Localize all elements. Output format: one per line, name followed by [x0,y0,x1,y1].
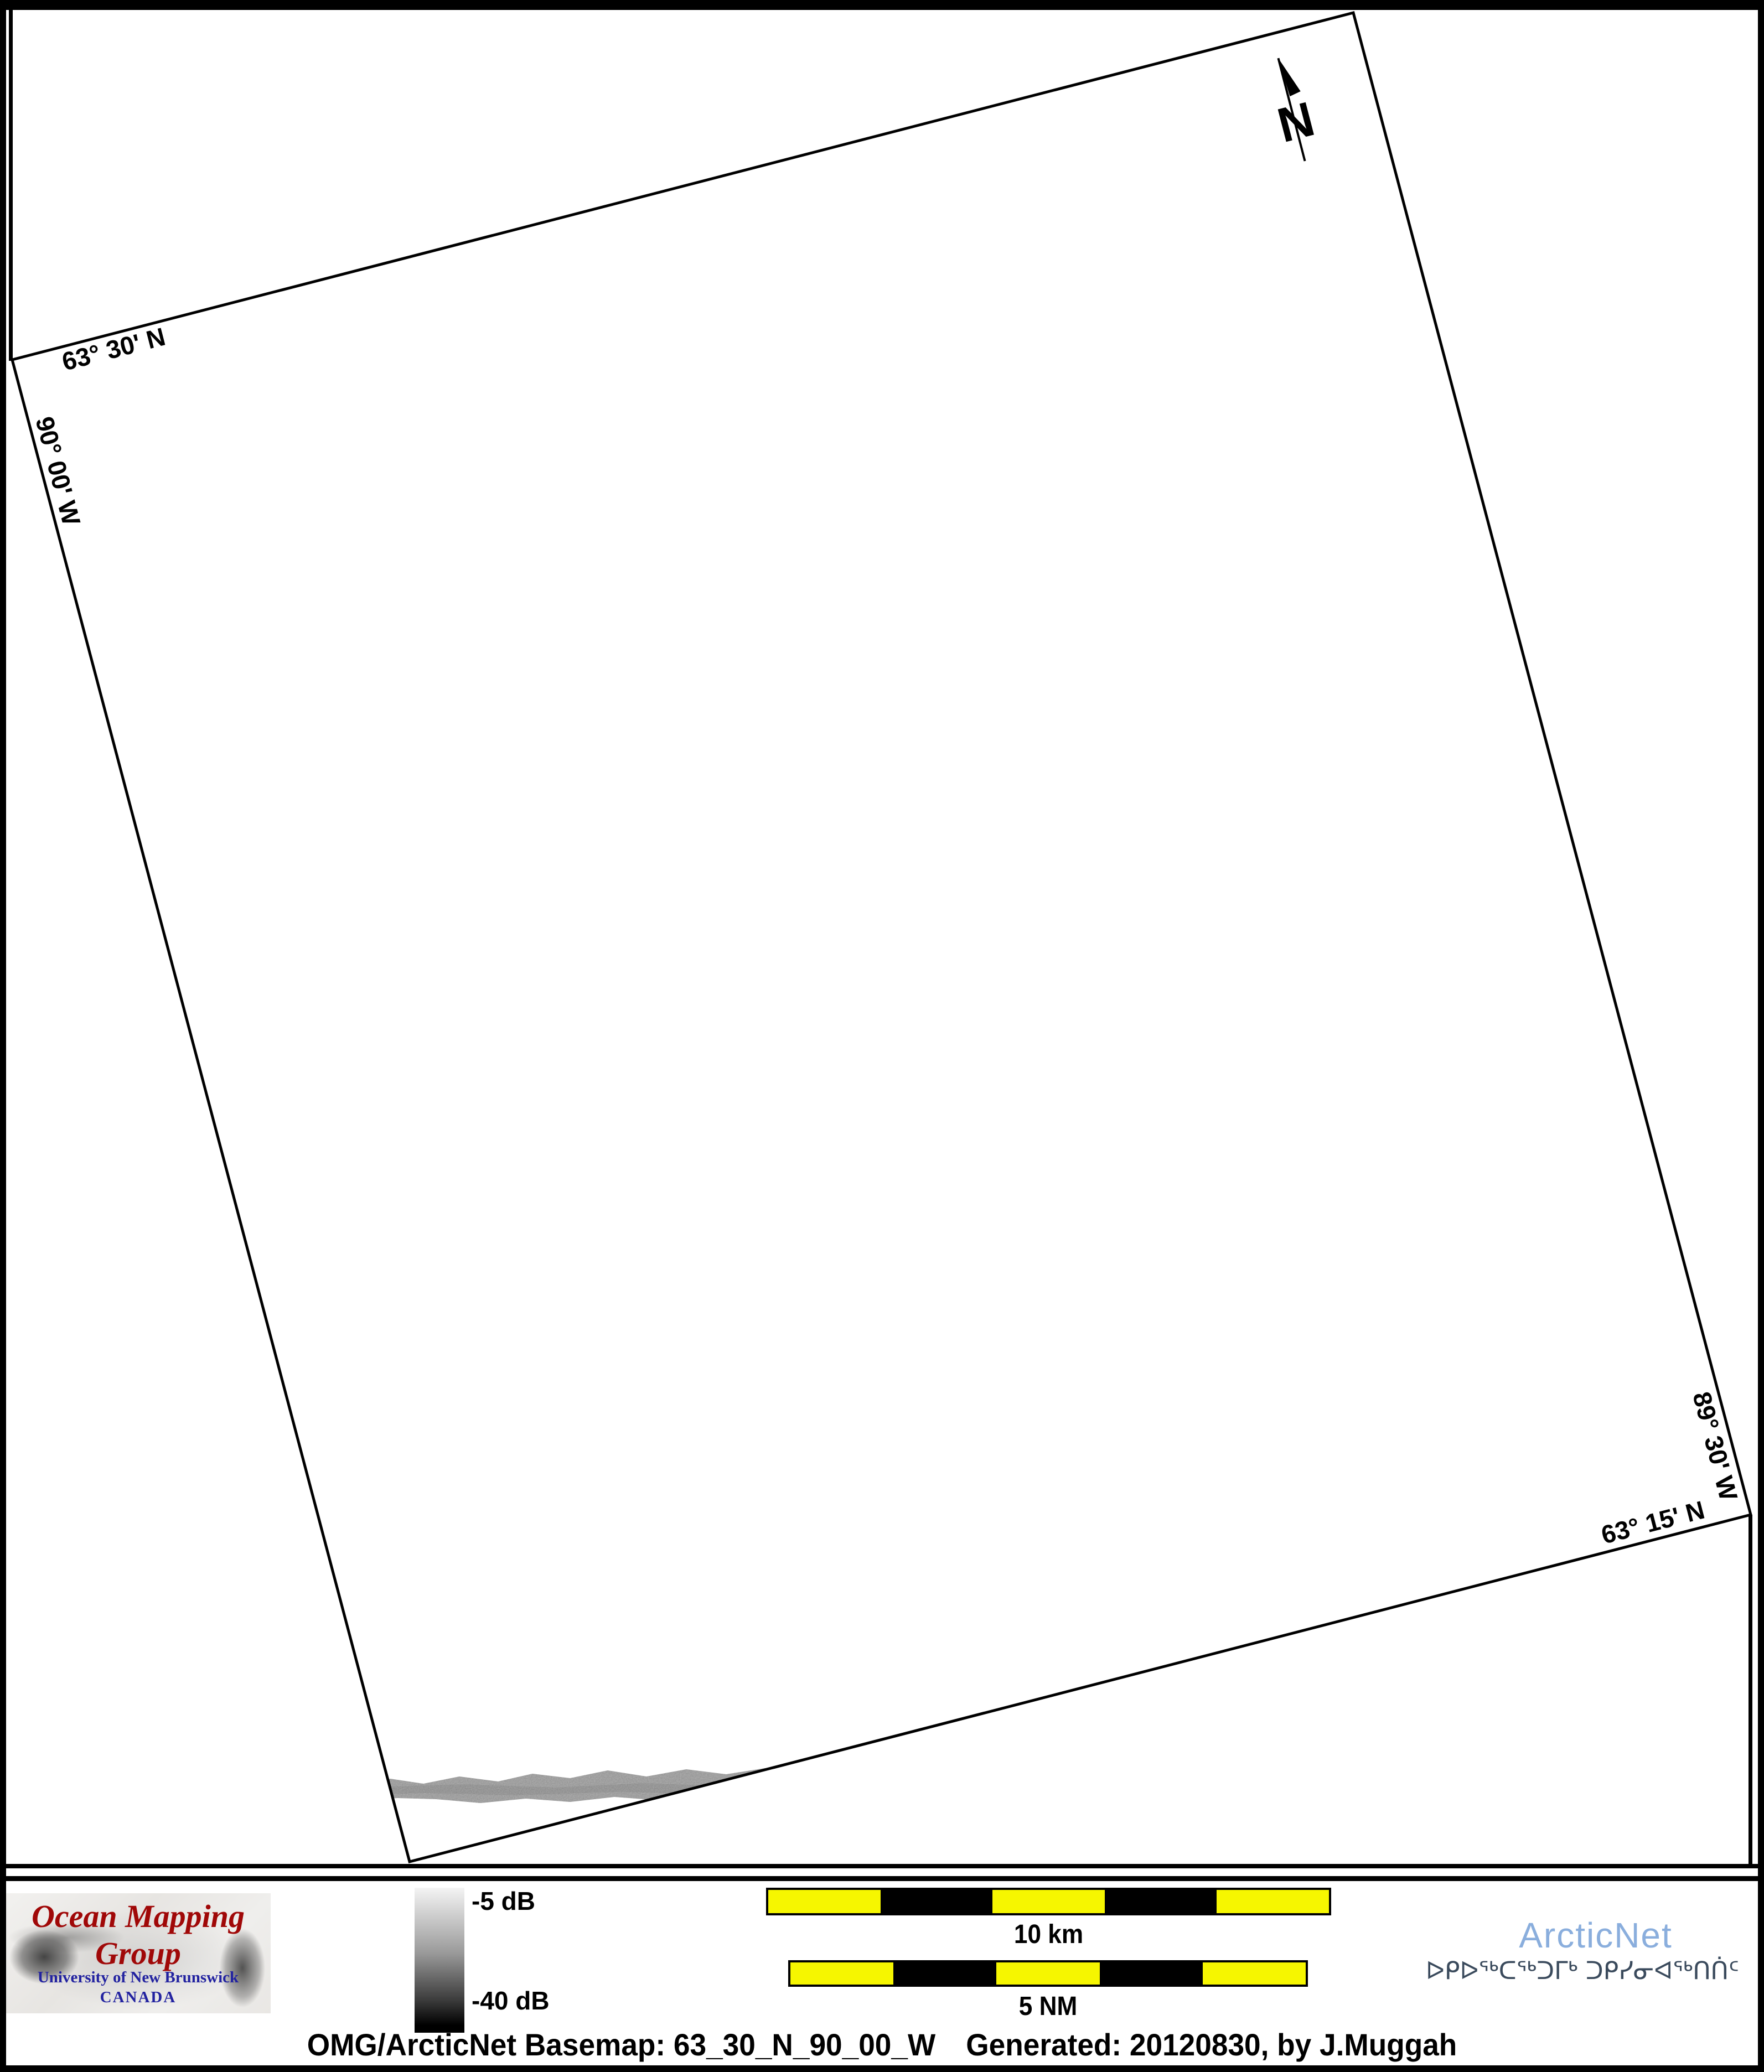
caption-generated-info: Generated: 20120830, by J.Muggah [966,2027,1457,2063]
scalebar-segment [1100,1962,1203,1985]
scalebar-segment [768,1890,881,1913]
footer-separator-line [0,1876,1764,1881]
north-label: N [1272,91,1320,153]
omg-logo-title: Ocean Mapping Group [6,1898,271,1972]
scalebar-nm [788,1960,1308,1987]
scalebar-segment [1203,1962,1306,1985]
backscatter-gradient-bar [415,1888,464,2033]
scalebar-segment [790,1962,893,1985]
scalebar-km-label: 10 km [789,1919,1308,1950]
map-neatline-left [9,10,13,361]
scalebar-segment [881,1890,993,1913]
outer-border-top [0,0,1764,10]
scalebar-segment [996,1962,1099,1985]
backscatter-swath [365,1768,839,1803]
outer-border-bottom [0,2065,1764,2072]
lon-label-right: 89° 30' W [1687,1389,1743,1504]
map-canvas: N 63° 30' N 90° 00' W 89° 30' W 63° 15' … [0,0,1764,2072]
map-sheet: N 63° 30' N 90° 00' W 89° 30' W 63° 15' … [0,0,1764,2072]
arcticnet-logo: ArcticNet [1430,1915,1762,1956]
outer-border-left [0,0,6,2072]
north-arrow: N [1263,54,1323,165]
legend-bottom-value: -40 dB [472,1986,550,2016]
omg-logo: Ocean Mapping Group University of New Br… [6,1893,271,2013]
map-panel-bottom-line [0,1864,1764,1868]
arcticnet-inuktitut-text: ᐅᑭᐅᖅᑕᖅᑐᒥᒃ ᑐᑭᓯᓂᐊᖅᑎᑏᑦ [1403,1957,1762,1985]
scalebar-segment [1105,1890,1217,1913]
lat-label-top: 63° 30' N [59,322,168,376]
omg-logo-country: CANADA [6,1988,271,2007]
scalebar-nm-label: 5 NM [809,1991,1287,2022]
scalebar-segment [1217,1890,1329,1913]
scalebar-segment [992,1890,1105,1913]
outer-border-right [1758,0,1764,2072]
caption-basemap-id: OMG/ArcticNet Basemap: 63_30_N_90_00_W [307,2027,935,2063]
omg-logo-institution: University of New Brunswick [6,1969,271,1987]
map-neatline-right [1749,1515,1752,1864]
scalebar-segment [893,1962,996,1985]
map-frame [12,13,1751,1862]
legend-top-value: -5 dB [472,1886,535,1916]
scalebar-km [766,1888,1331,1915]
lon-label-left: 90° 00' W [30,413,86,529]
map-caption: OMG/ArcticNet Basemap: 63_30_N_90_00_W G… [44,2027,1720,2063]
